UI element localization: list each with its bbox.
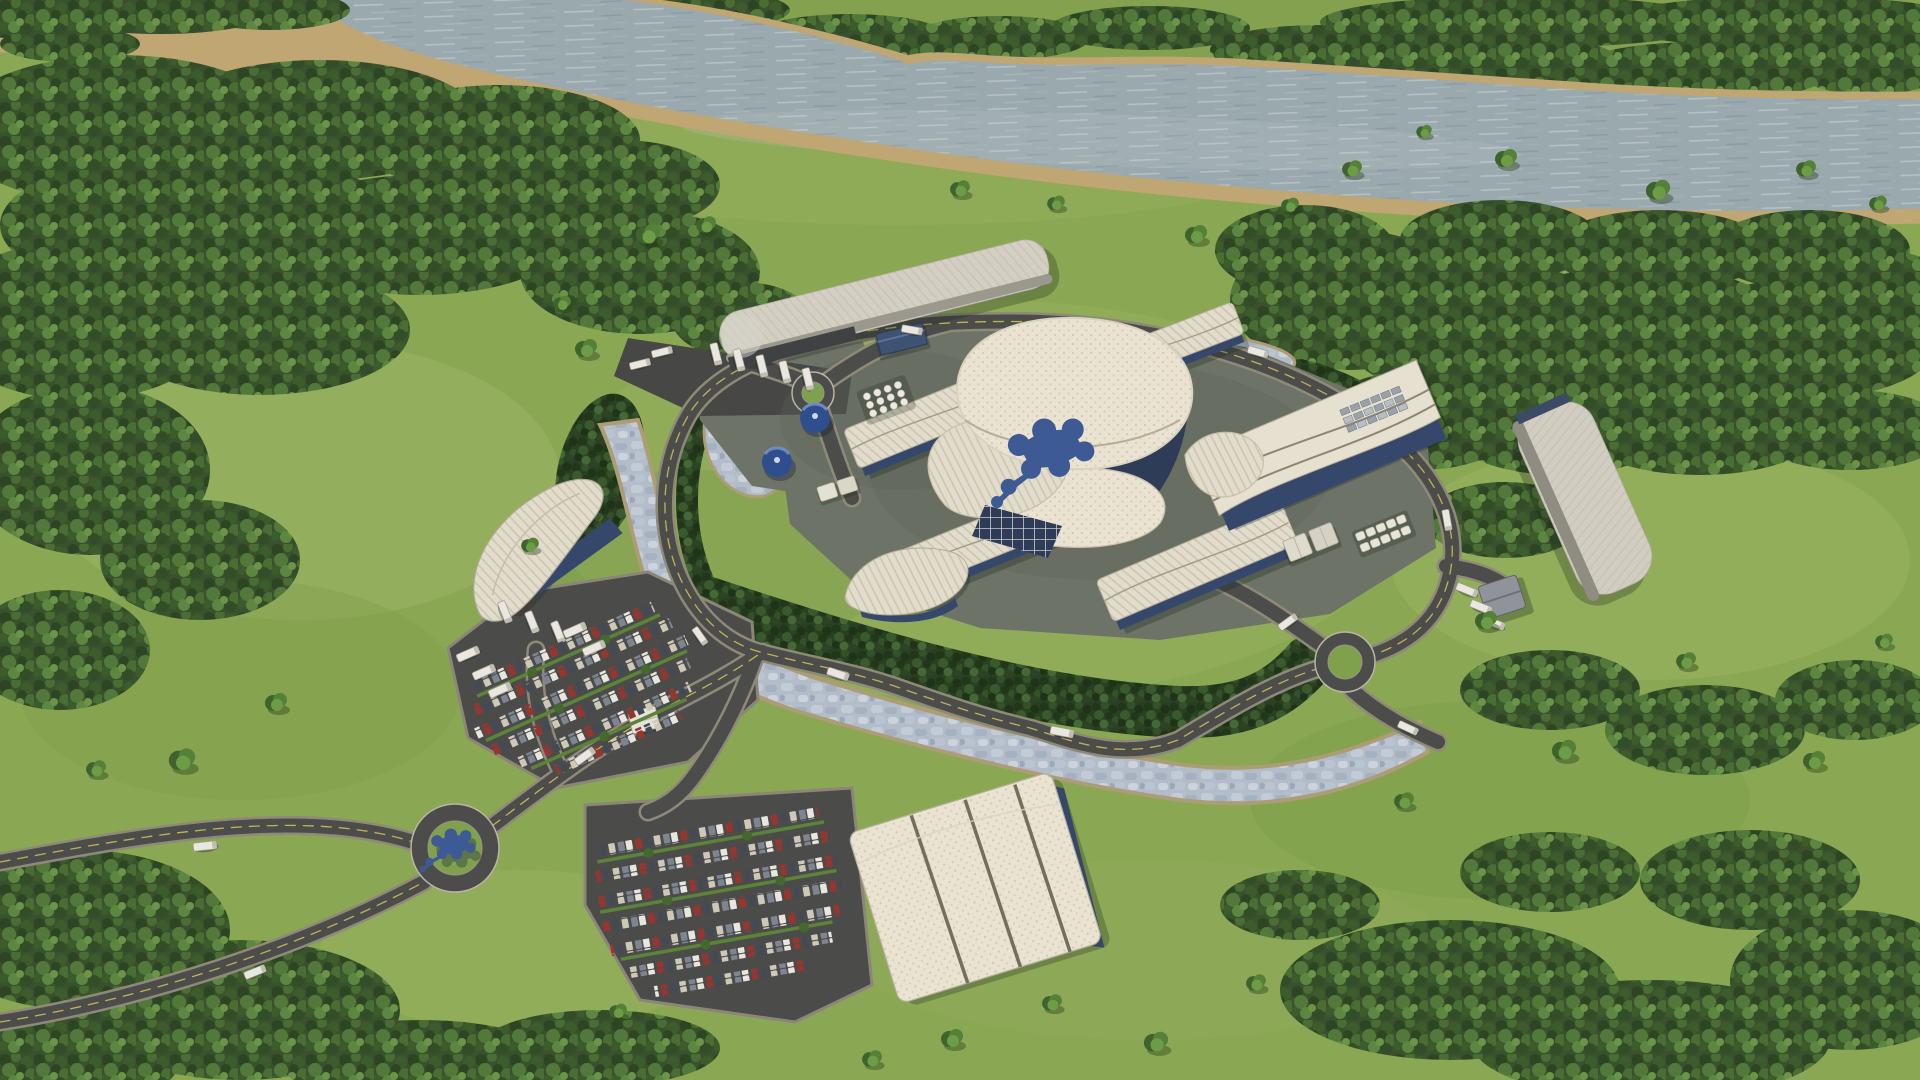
aerial-rendering <box>0 0 1920 1080</box>
roundabout-east <box>1315 632 1375 692</box>
scene-canvas <box>0 0 1920 1080</box>
